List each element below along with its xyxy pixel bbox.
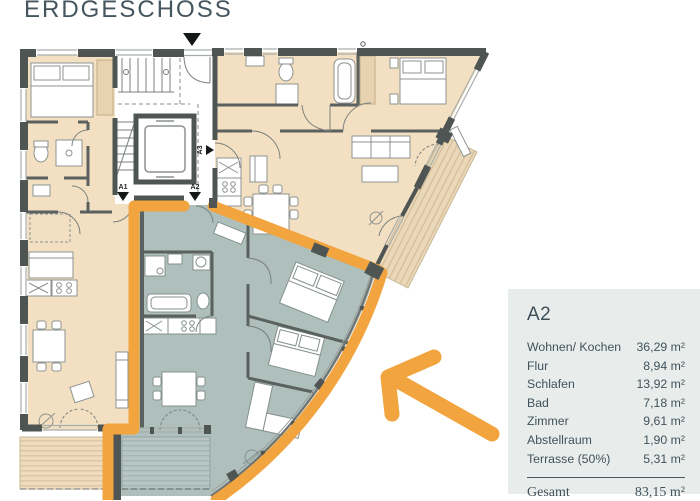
total-value: 83,15 m²: [635, 485, 685, 501]
room-label: Schlafen: [527, 375, 575, 394]
entry-label-a1: A1: [119, 184, 128, 191]
arrow-icon: [388, 357, 492, 434]
area-row: Zimmer 9,61 m²: [527, 412, 685, 431]
room-area: 1,90 m²: [643, 431, 685, 450]
terrace-a2: [122, 437, 210, 489]
room-area: 8,94 m²: [643, 357, 685, 376]
area-row: Wohnen/ Kochen 36,29 m²: [527, 338, 685, 357]
room-label: Bad: [527, 394, 549, 413]
entry-label-a3: A3: [197, 145, 204, 154]
main-entrance-marker: [183, 33, 201, 46]
room-label: Terrasse (50%): [527, 450, 610, 469]
room-area: 36,29 m²: [636, 338, 685, 357]
room-area: 5,31 m²: [643, 450, 685, 469]
room-area: 9,61 m²: [643, 412, 685, 431]
area-row: Terrasse (50%) 5,31 m²: [527, 450, 685, 469]
terrace-a1: [20, 437, 103, 489]
area-panel: A2 Wohnen/ Kochen 36,29 m² Flur 8,94 m² …: [508, 289, 700, 494]
total-row: Gesamt 83,15 m²: [527, 478, 685, 501]
room-area: 7,18 m²: [643, 394, 685, 413]
total-label: Gesamt: [527, 485, 570, 501]
room-label: Abstellraum: [527, 431, 592, 450]
area-row: Bad 7,18 m²: [527, 394, 685, 413]
room-label: Wohnen/ Kochen: [527, 338, 621, 357]
entry-label-a2: A2: [191, 184, 200, 191]
panel-apartment-title: A2: [527, 304, 685, 326]
room-label: Zimmer: [527, 412, 569, 431]
elevator-car: [145, 126, 185, 172]
room-area: 13,92 m²: [636, 375, 685, 394]
survey-point: [361, 42, 365, 46]
room-label: Flur: [527, 357, 548, 376]
area-row: Flur 8,94 m²: [527, 357, 685, 376]
area-row: Abstellraum 1,90 m²: [527, 431, 685, 450]
area-row: Schlafen 13,92 m²: [527, 375, 685, 394]
